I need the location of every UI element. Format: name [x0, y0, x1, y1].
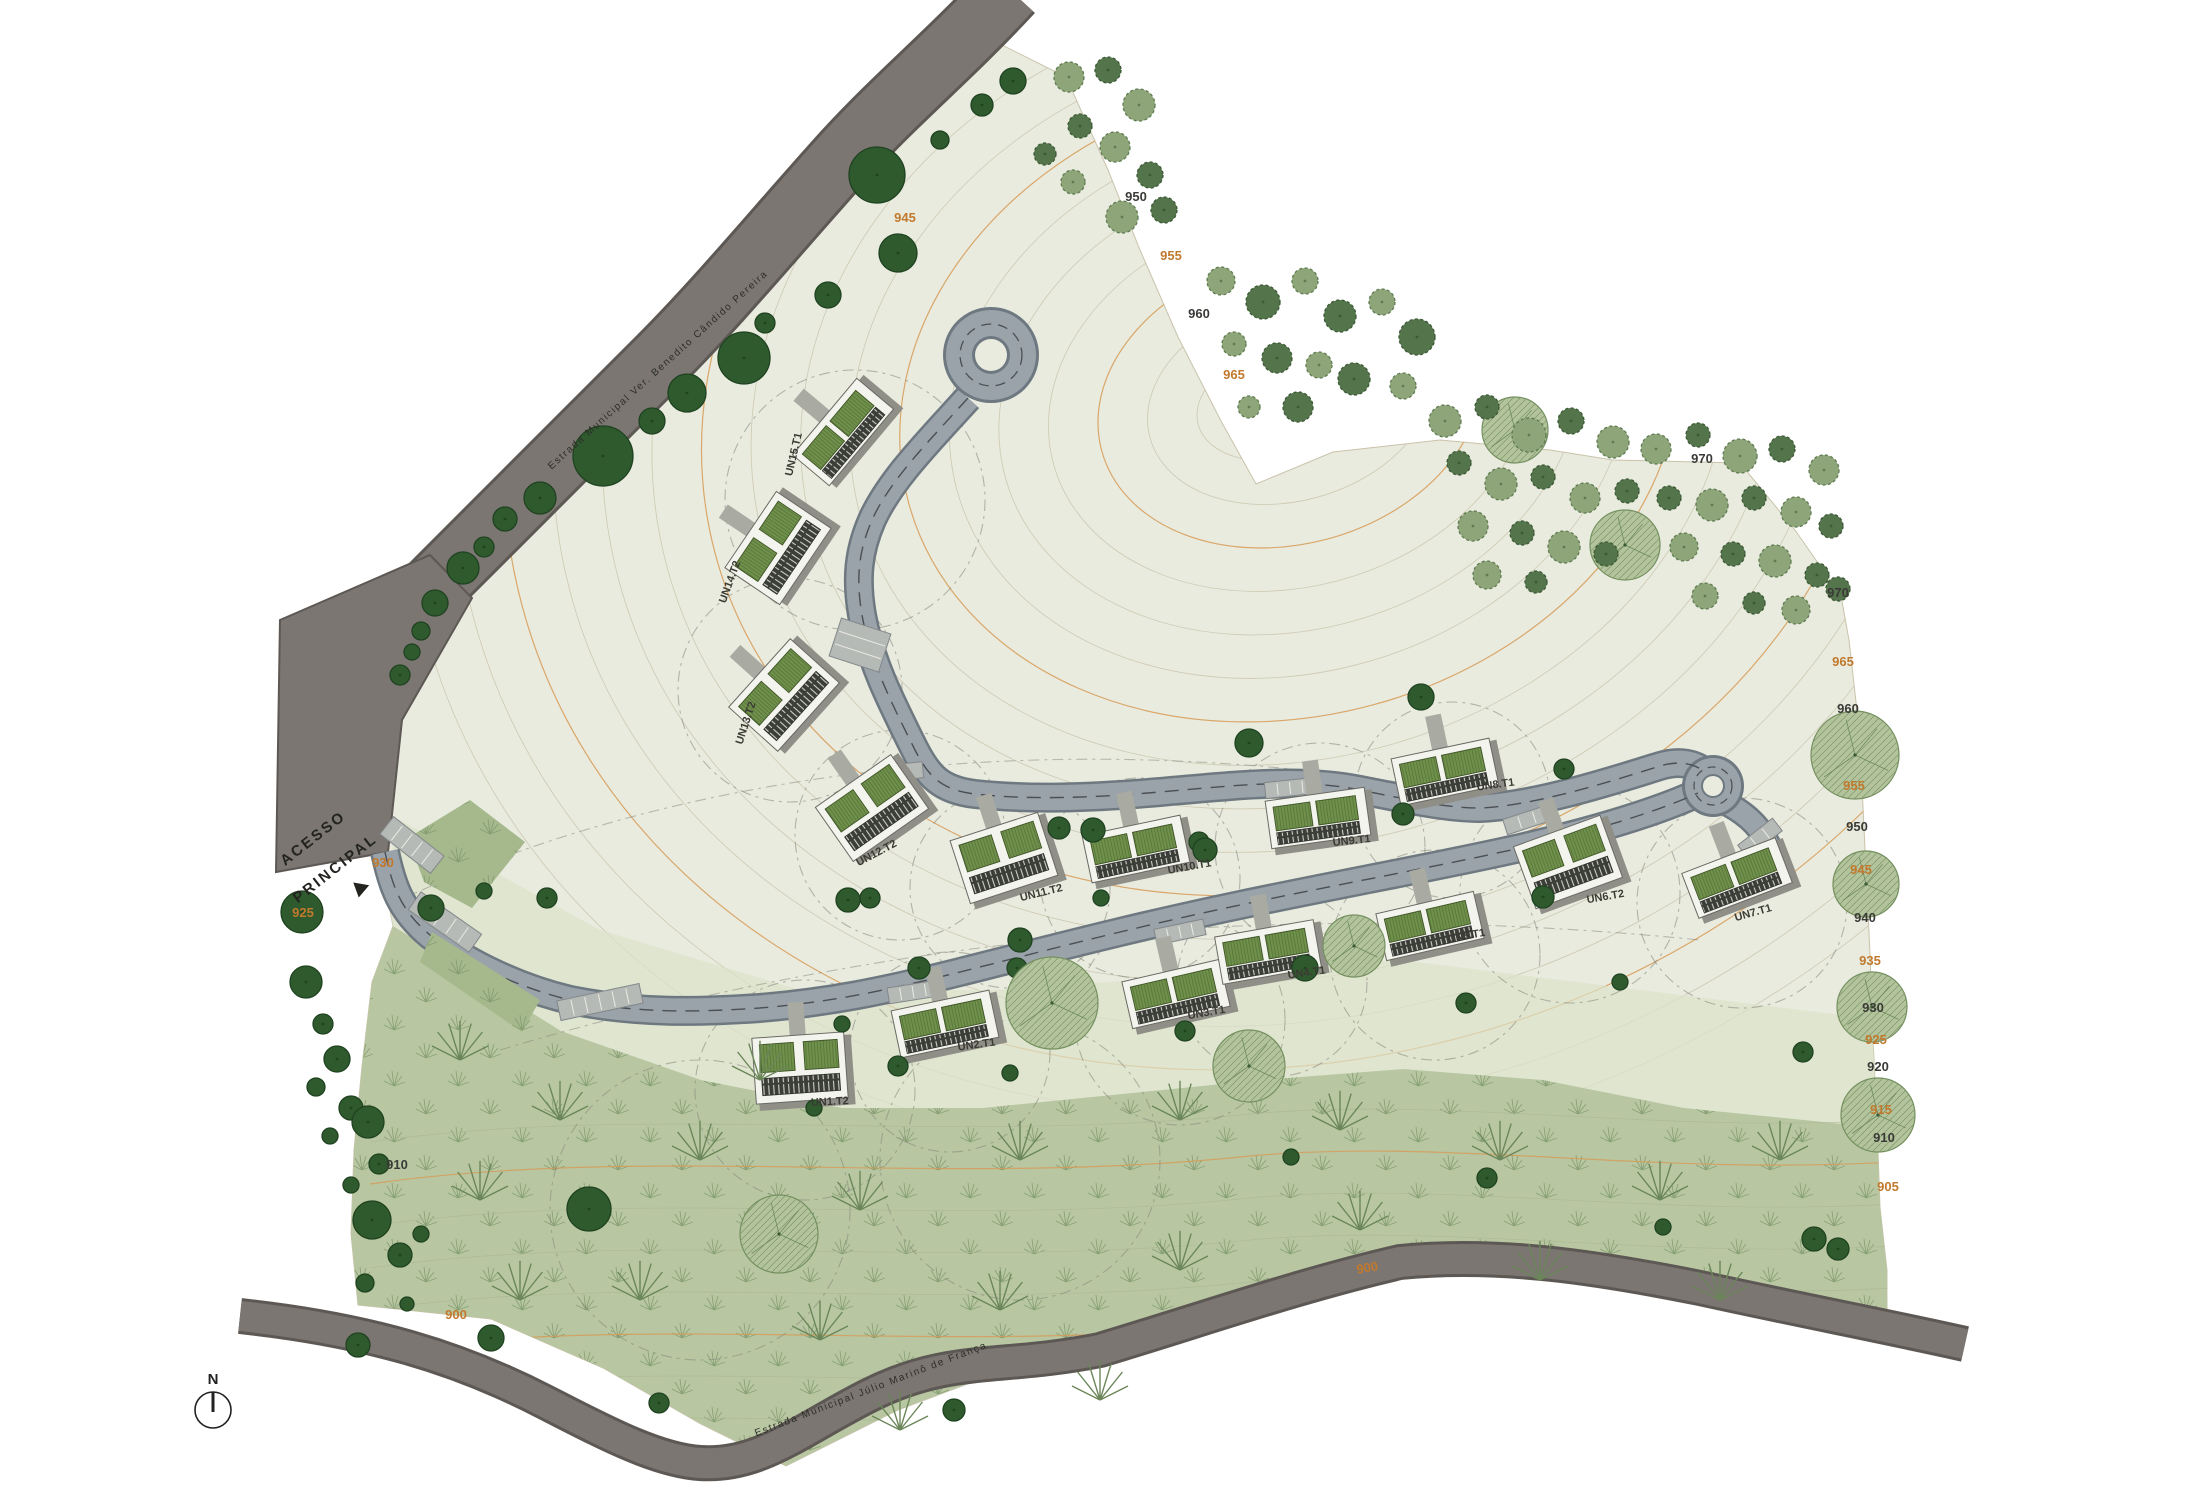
tree — [1246, 285, 1280, 319]
elevation-label: 965 — [1832, 654, 1854, 669]
tree — [1827, 1238, 1849, 1260]
tree-large-canopy — [1323, 915, 1385, 977]
tree — [1034, 143, 1056, 165]
elevation-label: 970 — [1827, 585, 1849, 600]
elevation-label: 950 — [1125, 189, 1147, 204]
site-plan-svg: UN15.T1UN14.T2UN13.T2UN12.T2UN11.T2UN10.… — [0, 0, 2200, 1504]
tree — [1324, 300, 1356, 332]
tree — [1002, 1065, 1018, 1081]
tree — [356, 1274, 374, 1292]
green-roof — [1273, 802, 1313, 831]
tree — [1819, 514, 1843, 538]
tree — [1802, 1227, 1826, 1251]
tree — [1597, 426, 1629, 458]
tree — [1510, 521, 1534, 545]
tree — [567, 1187, 611, 1231]
tree — [1554, 759, 1574, 779]
tree — [1100, 132, 1130, 162]
tree — [1615, 479, 1639, 503]
elevation-label: 960 — [1188, 306, 1210, 321]
tree — [493, 507, 517, 531]
tree — [1283, 1149, 1299, 1165]
tree — [478, 1325, 504, 1351]
tree — [1558, 408, 1584, 434]
tree — [1207, 267, 1235, 295]
elevation-label: 955 — [1843, 778, 1865, 793]
tree — [353, 1201, 391, 1239]
tree — [1106, 201, 1138, 233]
tree — [1781, 497, 1811, 527]
tree — [447, 552, 479, 584]
green-roof — [803, 1039, 839, 1069]
tree — [1008, 928, 1032, 952]
tree — [524, 482, 556, 514]
tree — [1525, 571, 1547, 593]
tree — [313, 1014, 333, 1034]
tree — [1570, 483, 1600, 513]
tree — [639, 408, 665, 434]
tree — [1805, 563, 1829, 587]
elevation-label: 930 — [1862, 1000, 1884, 1015]
tree — [1512, 418, 1546, 452]
tree — [1641, 434, 1671, 464]
tree — [879, 234, 917, 272]
tree — [1048, 817, 1070, 839]
tree — [343, 1177, 359, 1193]
tree — [324, 1046, 350, 1072]
tree — [834, 1016, 850, 1032]
elevation-label: 900 — [445, 1307, 467, 1322]
elevation-label: 955 — [1160, 248, 1182, 263]
tree — [1081, 818, 1105, 842]
tree — [400, 1297, 414, 1311]
tree — [1686, 423, 1710, 447]
elevation-label: 905 — [1877, 1179, 1899, 1194]
elevation-label: 910 — [1873, 1130, 1895, 1145]
tree — [307, 1078, 325, 1096]
tree — [1093, 890, 1109, 906]
elevation-label: 965 — [1223, 367, 1245, 382]
tree — [404, 644, 420, 660]
green-roof — [1316, 796, 1359, 825]
tree — [1721, 542, 1745, 566]
elevation-label: 945 — [894, 210, 916, 225]
elevation-label: 950 — [1846, 819, 1868, 834]
tree — [1485, 468, 1517, 500]
tree — [1612, 974, 1628, 990]
elevation-label: 925 — [1865, 1032, 1887, 1047]
tree — [422, 590, 448, 616]
tree — [1392, 803, 1414, 825]
tree — [755, 313, 775, 333]
tree-large-canopy — [1213, 1030, 1285, 1102]
elevation-label: 945 — [1850, 862, 1872, 877]
tree — [1235, 729, 1263, 757]
tree — [668, 374, 706, 412]
tree — [1670, 533, 1698, 561]
tree — [1151, 197, 1177, 223]
tree — [1742, 486, 1766, 510]
north-arrow: N — [195, 1371, 231, 1428]
tree — [390, 665, 410, 685]
elevation-label: 910 — [386, 1157, 408, 1172]
tree — [1408, 684, 1434, 710]
elevation-label: 920 — [1867, 1059, 1889, 1074]
tree — [1743, 592, 1765, 614]
tree — [849, 147, 905, 203]
tree — [1594, 542, 1618, 566]
tree — [888, 1056, 908, 1076]
tree — [1723, 439, 1757, 473]
tree — [1532, 886, 1554, 908]
elevation-label: 940 — [1854, 910, 1876, 925]
elevation-label: 915 — [1870, 1102, 1892, 1117]
tree — [412, 622, 430, 640]
tree-large-canopy — [1833, 851, 1899, 917]
tree — [815, 282, 841, 308]
tree — [1137, 162, 1163, 188]
access-arrow-icon — [353, 878, 372, 898]
tree — [1655, 1219, 1671, 1235]
building-label: UN1.T2 — [811, 1095, 849, 1109]
tree — [1477, 1168, 1497, 1188]
walkway-stub — [787, 1002, 805, 1037]
tree — [1793, 1042, 1813, 1062]
tree — [1548, 531, 1580, 563]
tree — [1399, 319, 1435, 355]
elevation-label: 935 — [1859, 953, 1881, 968]
tree — [1000, 68, 1026, 94]
tree — [1531, 465, 1555, 489]
north-label: N — [208, 1371, 219, 1388]
tree — [718, 332, 770, 384]
tree — [943, 1399, 965, 1421]
tree — [1068, 114, 1092, 138]
tree — [1447, 451, 1471, 475]
tree — [1123, 89, 1155, 121]
tree — [388, 1243, 412, 1267]
tree — [1175, 1021, 1195, 1041]
tree — [352, 1106, 384, 1138]
tree-large-canopy — [1006, 957, 1098, 1049]
tree — [1369, 289, 1395, 315]
tree — [1458, 511, 1488, 541]
tree — [418, 895, 444, 921]
tree — [1054, 62, 1084, 92]
tree — [1759, 545, 1791, 577]
tree — [1262, 343, 1292, 373]
tree — [413, 1226, 429, 1242]
tree — [346, 1333, 370, 1357]
tree — [1475, 395, 1499, 419]
tree — [1095, 57, 1121, 83]
elevation-label: 970 — [1691, 451, 1713, 466]
tree — [1456, 993, 1476, 1013]
tree-large-canopy — [740, 1195, 818, 1273]
tree — [1696, 489, 1728, 521]
tree — [1238, 396, 1260, 418]
tree — [537, 888, 557, 908]
tree — [1657, 486, 1681, 510]
tree — [1782, 596, 1810, 624]
tree — [860, 888, 880, 908]
tree — [908, 957, 930, 979]
tree — [322, 1128, 338, 1144]
tree — [1061, 170, 1085, 194]
tree — [1283, 392, 1313, 422]
tree — [931, 131, 949, 149]
tree — [971, 94, 993, 116]
elevation-label: 930 — [372, 855, 394, 870]
tree — [1292, 268, 1318, 294]
tree — [1429, 405, 1461, 437]
tree — [1390, 373, 1416, 399]
site-plan-page: UN15.T1UN14.T2UN13.T2UN12.T2UN11.T2UN10.… — [0, 0, 2200, 1504]
tree — [290, 966, 322, 998]
tree — [1306, 352, 1332, 378]
elevation-label: 925 — [292, 905, 314, 920]
tree — [1473, 561, 1501, 589]
tree — [649, 1393, 669, 1413]
tree — [1338, 363, 1370, 395]
tree — [1222, 332, 1246, 356]
tree — [1692, 583, 1718, 609]
tree — [1809, 455, 1839, 485]
tree — [1769, 436, 1795, 462]
tree — [476, 883, 492, 899]
elevation-label: 960 — [1837, 701, 1859, 716]
tree — [474, 537, 494, 557]
tree — [836, 888, 860, 912]
